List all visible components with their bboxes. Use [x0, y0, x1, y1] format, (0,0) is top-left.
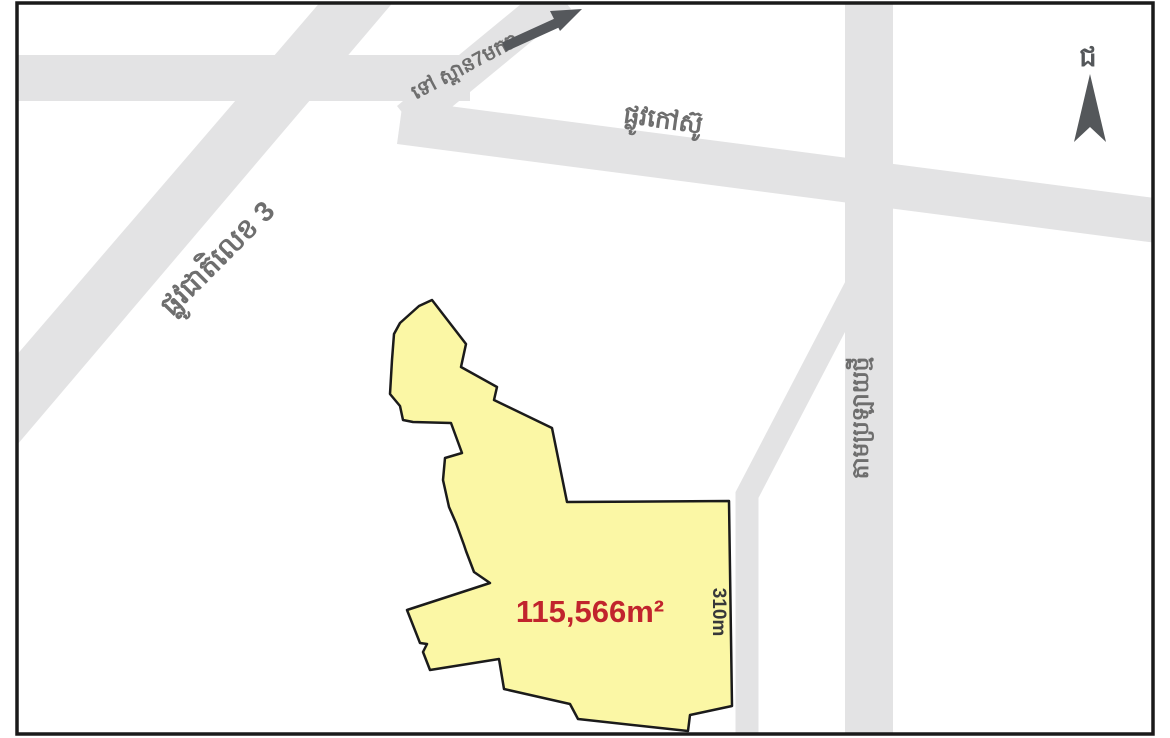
parcel-edge-length-label: 310m: [708, 588, 729, 637]
parcel-area-label: 115,566m²: [516, 594, 664, 629]
land-map: 115,566m² 310m ផ្លូវជាតិលេខ 3 ផ្លូវកៅស៊ូ…: [0, 0, 1170, 738]
map-canvas: 115,566m² 310m ផ្លូវជាតិលេខ 3 ផ្លូវកៅស៊ូ…: [0, 0, 1170, 738]
road-label-canal: តាមប្រឡាយថ្មី: [845, 357, 875, 480]
road-horizontal: [10, 55, 470, 101]
north-letter: ជ: [1079, 42, 1096, 72]
